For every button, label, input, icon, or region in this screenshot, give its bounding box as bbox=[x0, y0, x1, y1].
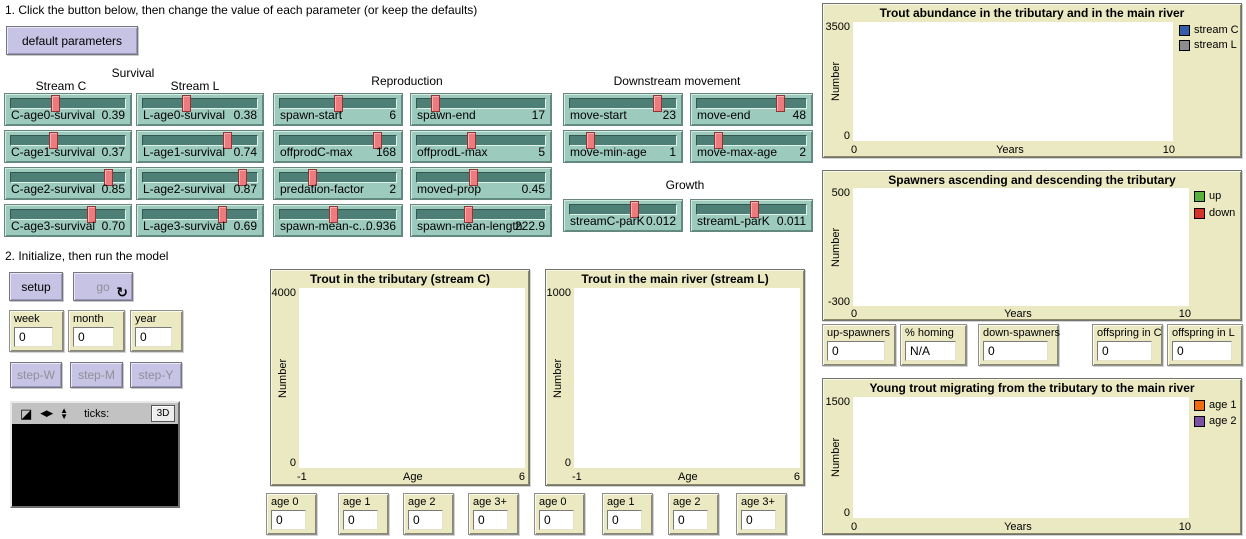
group-label-growth: Growth bbox=[635, 178, 735, 192]
slider-move-max-age[interactable]: move-max-age 2 bbox=[690, 130, 813, 163]
slider-label: spawn-mean-c... bbox=[280, 219, 369, 233]
x-axis-max-label: 6 bbox=[794, 471, 800, 483]
slider-label: move-end bbox=[697, 108, 750, 122]
monitor-month: month 0 bbox=[68, 310, 125, 352]
monitor-label: age 3+ bbox=[473, 496, 507, 508]
slider-value: 5 bbox=[538, 145, 545, 159]
monitor-value: 0 bbox=[827, 341, 885, 361]
plot-canvas bbox=[853, 397, 1189, 518]
slider-predation-factor[interactable]: predation-factor 2 bbox=[273, 167, 403, 200]
slider-l-age1-survival[interactable]: L-age1-survival 0.74 bbox=[136, 130, 264, 163]
slider-l-age0-survival[interactable]: L-age0-survival 0.38 bbox=[136, 93, 264, 126]
slider-c-age3-survival[interactable]: C-age3-survival 0.70 bbox=[4, 204, 132, 237]
y-axis-name: Number bbox=[277, 288, 289, 468]
monitor-label: age 0 bbox=[271, 496, 299, 508]
x-axis-row: 0 Years 10 bbox=[851, 308, 1191, 320]
x-axis-name: Age bbox=[678, 471, 698, 483]
x-axis-name: Years bbox=[996, 144, 1024, 156]
plot-canvas bbox=[299, 288, 525, 468]
world-view[interactable]: ◪ ◀▶ ▲ ▼ ticks: 3D bbox=[10, 401, 180, 508]
slider-value: 0.70 bbox=[102, 219, 125, 233]
slider-spawn-end[interactable]: spawn-end 17 bbox=[410, 93, 552, 126]
x-axis-min-label: 0 bbox=[851, 521, 857, 533]
monitor-offspring-in-c: offspring in C 0 bbox=[1092, 324, 1163, 366]
monitor-label: down-spawners bbox=[983, 327, 1060, 339]
legend-entry: up bbox=[1194, 190, 1221, 202]
monitor-value: 0 bbox=[741, 510, 776, 530]
slider-thumb[interactable] bbox=[653, 95, 662, 112]
slider-value: 48 bbox=[793, 108, 806, 122]
monitor-percent-homing: % homing N/A bbox=[900, 324, 967, 366]
view-resize-icon[interactable]: ◪ bbox=[20, 407, 32, 420]
monitor-value: 0 bbox=[983, 341, 1048, 361]
slider-moved-prop[interactable]: moved-prop 0.45 bbox=[410, 167, 552, 200]
monitor-label: offspring in C bbox=[1097, 327, 1162, 339]
setup-button[interactable]: setup bbox=[9, 272, 63, 301]
monitor-age3plus-c: age 3+ 0 bbox=[468, 493, 519, 535]
legend-swatch-age2 bbox=[1194, 416, 1205, 427]
slider-value: 23 bbox=[663, 108, 676, 122]
monitor-value: 0 bbox=[607, 510, 642, 530]
slider-c-age1-survival[interactable]: C-age1-survival 0.37 bbox=[4, 130, 132, 163]
legend-swatch-stream-c bbox=[1179, 25, 1190, 36]
monitor-label: age 1 bbox=[607, 496, 635, 508]
view-horizontal-arrows-icon[interactable]: ◀▶ bbox=[40, 409, 52, 418]
monitor-label: age 2 bbox=[673, 496, 701, 508]
x-axis-row: 0 Years 10 bbox=[851, 521, 1191, 533]
plot-title: Trout in the main river (stream L) bbox=[546, 272, 804, 286]
monitor-value: 0 bbox=[343, 510, 378, 530]
slider-l-age3-survival[interactable]: L-age3-survival 0.69 bbox=[136, 204, 264, 237]
monitor-age1-l: age 1 0 bbox=[602, 493, 653, 535]
group-label-stream-c: Stream C bbox=[11, 79, 111, 93]
legend-swatch-up bbox=[1194, 191, 1205, 202]
legend-label: up bbox=[1209, 190, 1221, 202]
slider-value: 0.45 bbox=[522, 182, 545, 196]
slider-label: L-age2-survival bbox=[143, 182, 225, 196]
slider-value: 0.87 bbox=[234, 182, 257, 196]
slider-label: C-age3-survival bbox=[11, 219, 95, 233]
legend-label: stream L bbox=[1194, 39, 1237, 51]
x-axis-name: Age bbox=[403, 471, 423, 483]
monitor-label: up-spawners bbox=[827, 327, 890, 339]
legend-swatch-stream-l bbox=[1179, 40, 1190, 51]
forever-icon: ↻ bbox=[116, 285, 128, 299]
x-axis-max-label: 6 bbox=[519, 471, 525, 483]
y-axis-name: Number bbox=[830, 397, 842, 518]
slider-value: 0.69 bbox=[234, 219, 257, 233]
monitor-value: 0 bbox=[473, 510, 508, 530]
plot-spawners: Spawners ascending and descending the tr… bbox=[822, 170, 1242, 321]
slider-move-min-age[interactable]: move-min-age 1 bbox=[563, 130, 683, 163]
x-axis-row: -1 Age 6 bbox=[572, 471, 800, 483]
monitor-value: 0 bbox=[1097, 341, 1152, 361]
legend-entry: stream C bbox=[1179, 24, 1239, 36]
monitor-label: age 1 bbox=[343, 496, 371, 508]
slider-value: 0.74 bbox=[234, 145, 257, 159]
slider-value: 0.011 bbox=[777, 214, 806, 228]
monitor-value: 0 bbox=[539, 510, 574, 530]
legend-label: down bbox=[1209, 207, 1235, 219]
monitor-value: 0 bbox=[408, 510, 443, 530]
plot-young-trout-migrating: Young trout migrating from the tributary… bbox=[822, 378, 1242, 535]
slider-label: moved-prop bbox=[417, 182, 481, 196]
slider-label: L-age3-survival bbox=[143, 219, 225, 233]
monitor-label: age 0 bbox=[539, 496, 567, 508]
slider-value: 1 bbox=[669, 145, 676, 159]
group-label-stream-l: Stream L bbox=[145, 79, 245, 93]
slider-label: move-start bbox=[570, 108, 627, 122]
slider-offprodc-max[interactable]: offprodC-max 168 bbox=[273, 130, 403, 163]
view-control-strip: ◪ ◀▶ ▲ ▼ ticks: 3D bbox=[12, 403, 178, 424]
step-w-button[interactable]: step-W bbox=[10, 362, 62, 388]
monitor-label: % homing bbox=[905, 327, 954, 339]
slider-value: 2 bbox=[389, 182, 396, 196]
plot-canvas bbox=[574, 288, 800, 468]
monitor-value: 0 bbox=[271, 510, 306, 530]
monitor-label: age 2 bbox=[408, 496, 436, 508]
step-y-button[interactable]: step-Y bbox=[130, 362, 182, 388]
slider-value: 0.85 bbox=[102, 182, 125, 196]
monitor-age2-c: age 2 0 bbox=[403, 493, 454, 535]
monitor-age0-c: age 0 0 bbox=[266, 493, 317, 535]
x-axis-max-label: 10 bbox=[1179, 521, 1191, 533]
default-parameters-button[interactable]: default parameters bbox=[6, 26, 138, 55]
monitor-value: 0 bbox=[14, 327, 53, 347]
slider-label: streamC-parK bbox=[570, 214, 645, 228]
y-axis-name: Number bbox=[830, 22, 842, 141]
slider-value: 2 bbox=[799, 145, 806, 159]
slider-label: spawn-end bbox=[417, 108, 476, 122]
monitor-age2-l: age 2 0 bbox=[668, 493, 719, 535]
slider-streaml-park[interactable]: streamL-parK 0.011 bbox=[690, 199, 813, 232]
slider-value: 6 bbox=[389, 108, 396, 122]
plot-trout-tributary: Trout in the tributary (stream C) 4000 0… bbox=[270, 269, 530, 486]
slider-label: offprodL-max bbox=[417, 145, 487, 159]
slider-label: C-age1-survival bbox=[11, 145, 95, 159]
instruction-step2: 2. Initialize, then run the model bbox=[5, 249, 168, 263]
legend-swatch-age1 bbox=[1194, 400, 1205, 411]
view-vertical-arrows-icon[interactable]: ▲ ▼ bbox=[60, 408, 68, 420]
x-axis-max-label: 10 bbox=[1163, 144, 1175, 156]
slider-c-age0-survival[interactable]: C-age0-survival 0.39 bbox=[4, 93, 132, 126]
slider-label: move-min-age bbox=[570, 145, 647, 159]
x-axis-min-label: -1 bbox=[572, 471, 582, 483]
monitor-label: age 3+ bbox=[741, 496, 775, 508]
x-axis-row: -1 Age 6 bbox=[297, 471, 525, 483]
slider-thumb[interactable] bbox=[776, 95, 785, 112]
monitor-year: year 0 bbox=[130, 310, 183, 352]
monitor-label: month bbox=[73, 313, 104, 325]
slider-label: C-age2-survival bbox=[11, 182, 95, 196]
plot-trout-abundance: Trout abundance in the tributary and in … bbox=[822, 3, 1242, 158]
view-3d-button[interactable]: 3D bbox=[151, 405, 175, 422]
monitor-up-spawners: up-spawners 0 bbox=[822, 324, 896, 366]
plot-title: Young trout migrating from the tributary… bbox=[823, 381, 1241, 395]
legend-label: age 1 bbox=[1209, 399, 1237, 411]
step-m-button[interactable]: step-M bbox=[70, 362, 123, 388]
go-button-label: go bbox=[96, 280, 109, 294]
x-axis-row: 0 Years 10 bbox=[851, 144, 1175, 156]
group-label-downstream-movement: Downstream movement bbox=[597, 74, 757, 88]
down-triangle-icon: ▼ bbox=[60, 414, 68, 420]
legend-entry: age 2 bbox=[1194, 415, 1237, 427]
slider-spawn-start[interactable]: spawn-start 6 bbox=[273, 93, 403, 126]
monitor-value: 0 bbox=[135, 327, 172, 347]
slider-label: L-age0-survival bbox=[143, 108, 225, 122]
slider-value: 17 bbox=[532, 108, 545, 122]
slider-l-age2-survival[interactable]: L-age2-survival 0.87 bbox=[136, 167, 264, 200]
legend-entry: age 1 bbox=[1194, 399, 1237, 411]
group-label-survival: Survival bbox=[83, 66, 183, 80]
legend-entry: stream L bbox=[1179, 39, 1237, 51]
monitor-value: 0 bbox=[1172, 341, 1232, 361]
slider-value: 0.37 bbox=[102, 145, 125, 159]
slider-value: 0.012 bbox=[646, 214, 676, 228]
monitor-week: week 0 bbox=[9, 310, 64, 352]
slider-label: predation-factor bbox=[280, 182, 364, 196]
slider-spawn-mean-c[interactable]: spawn-mean-c... 0.936 bbox=[273, 204, 403, 237]
slider-value: 168 bbox=[376, 145, 396, 159]
x-axis-name: Years bbox=[1004, 308, 1032, 320]
plot-title: Trout abundance in the tributary and in … bbox=[823, 6, 1241, 20]
monitor-value: N/A bbox=[905, 341, 956, 361]
plot-title: Trout in the tributary (stream C) bbox=[271, 272, 529, 286]
monitor-label: week bbox=[14, 313, 40, 325]
slider-label: move-max-age bbox=[697, 145, 777, 159]
monitor-offspring-in-l: offspring in L 0 bbox=[1167, 324, 1243, 366]
plot-canvas bbox=[853, 188, 1189, 306]
y-axis-name: Number bbox=[552, 288, 564, 468]
monitor-age0-l: age 0 0 bbox=[534, 493, 585, 535]
group-label-reproduction: Reproduction bbox=[332, 74, 482, 88]
slider-value: 0.936 bbox=[366, 219, 396, 233]
slider-label: L-age1-survival bbox=[143, 145, 225, 159]
slider-value: 0.38 bbox=[234, 108, 257, 122]
x-axis-name: Years bbox=[1004, 521, 1032, 533]
monitor-down-spawners: down-spawners 0 bbox=[978, 324, 1059, 366]
slider-value: 0.39 bbox=[102, 108, 125, 122]
x-axis-min-label: 0 bbox=[851, 144, 857, 156]
slider-label: spawn-mean-length bbox=[417, 219, 522, 233]
monitor-label: year bbox=[135, 313, 156, 325]
slider-offprodl-max[interactable]: offprodL-max 5 bbox=[410, 130, 552, 163]
instruction-step1: 1. Click the button below, then change t… bbox=[5, 3, 477, 17]
legend-swatch-down bbox=[1194, 208, 1205, 219]
plot-trout-main-river: Trout in the main river (stream L) 1000 … bbox=[545, 269, 805, 486]
monitor-age1-c: age 1 0 bbox=[338, 493, 389, 535]
slider-c-age2-survival[interactable]: C-age2-survival 0.85 bbox=[4, 167, 132, 200]
slider-move-start[interactable]: move-start 23 bbox=[563, 93, 683, 126]
monitor-age3plus-l: age 3+ 0 bbox=[736, 493, 787, 535]
go-button[interactable]: go ↻ bbox=[73, 272, 133, 301]
x-axis-min-label: 0 bbox=[851, 308, 857, 320]
legend-label: age 2 bbox=[1209, 415, 1237, 427]
y-axis-name: Number bbox=[830, 188, 842, 306]
slider-label: C-age0-survival bbox=[11, 108, 95, 122]
netlogo-interface: 1. Click the button below, then change t… bbox=[0, 0, 1246, 539]
slider-move-end[interactable]: move-end 48 bbox=[690, 93, 813, 126]
legend-entry: down bbox=[1194, 207, 1235, 219]
legend-label: stream C bbox=[1194, 24, 1239, 36]
monitor-value: 0 bbox=[673, 510, 708, 530]
plot-title: Spawners ascending and descending the tr… bbox=[823, 173, 1241, 187]
slider-streamc-park[interactable]: streamC-parK 0.012 bbox=[563, 199, 683, 232]
x-axis-max-label: 10 bbox=[1179, 308, 1191, 320]
x-axis-min-label: -1 bbox=[297, 471, 307, 483]
monitor-label: offspring in L bbox=[1172, 327, 1235, 339]
slider-label: spawn-start bbox=[280, 108, 342, 122]
slider-value: 222.9 bbox=[515, 219, 545, 233]
slider-spawn-mean-length[interactable]: spawn-mean-length 222.9 bbox=[410, 204, 552, 237]
monitor-value: 0 bbox=[73, 327, 114, 347]
slider-label: streamL-parK bbox=[697, 214, 770, 228]
ticks-counter-label: ticks: bbox=[84, 408, 109, 420]
plot-canvas bbox=[853, 22, 1173, 141]
slider-label: offprodC-max bbox=[280, 145, 352, 159]
